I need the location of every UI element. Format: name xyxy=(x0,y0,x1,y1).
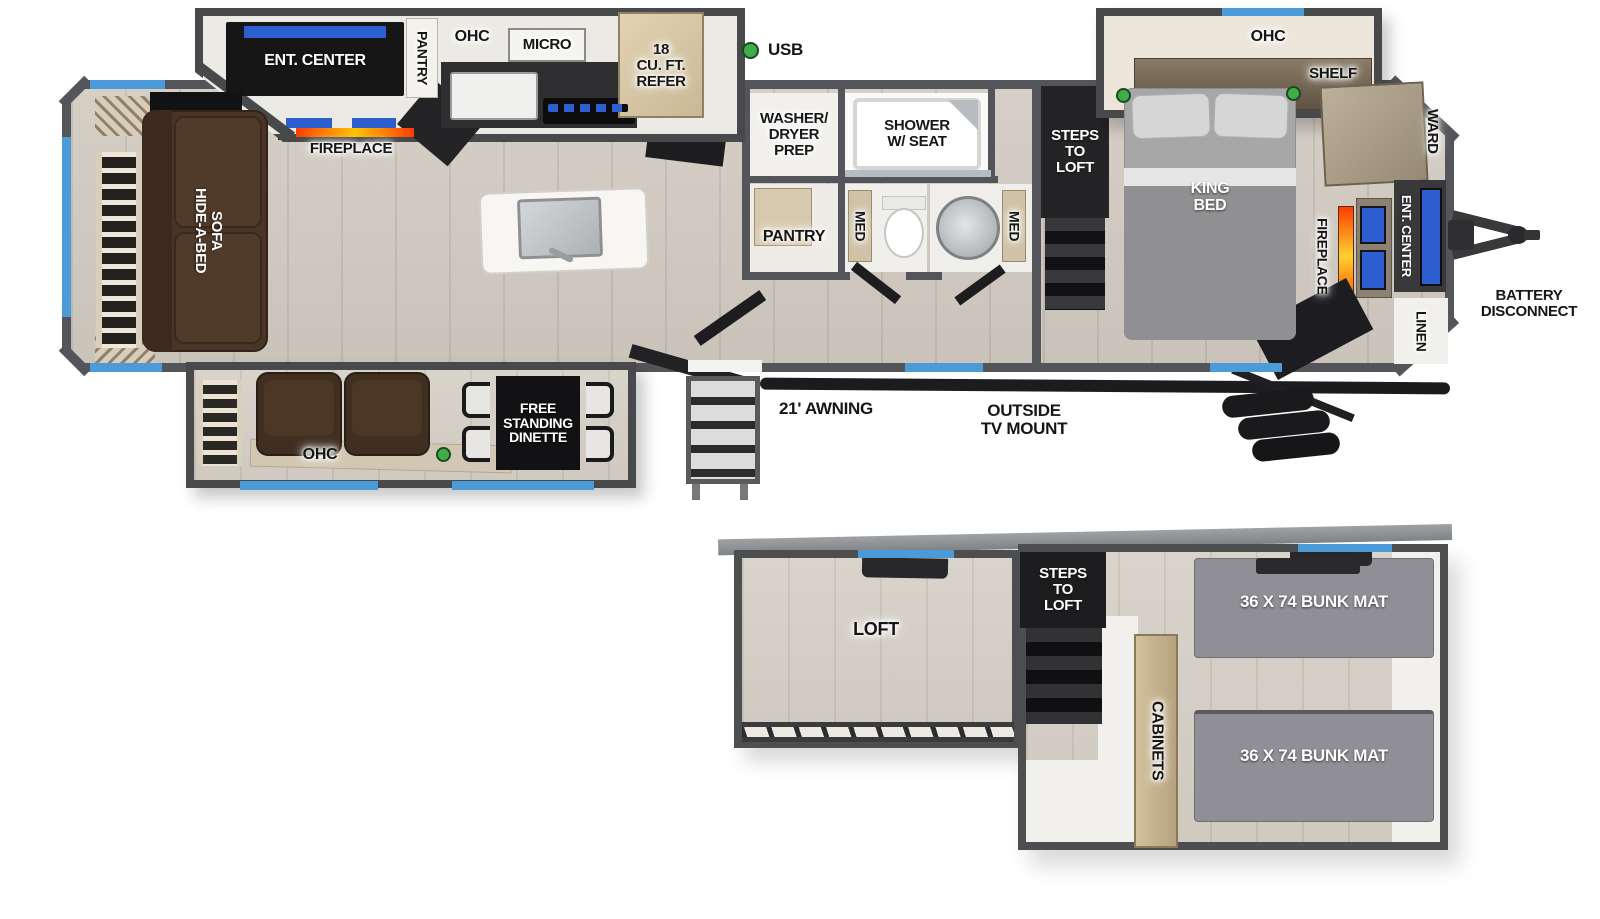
label-steps-lower: STEPS TO LOFT xyxy=(1016,556,1110,624)
entry-door-gap xyxy=(688,360,762,372)
window-loft xyxy=(858,550,954,558)
hide-a-bed-mechanism xyxy=(96,152,142,348)
wardrobe-cabinet xyxy=(1319,81,1428,186)
label-cabinets: CABINETS xyxy=(1132,640,1180,842)
kitchen-sink xyxy=(450,72,538,120)
label-kitchen-ohc: OHC xyxy=(443,26,501,48)
label-micro: MICRO xyxy=(508,28,586,62)
dinette-chair-top-left xyxy=(462,382,490,418)
bath-wall-bottom-b xyxy=(906,272,942,280)
window-rear-wall xyxy=(62,137,71,317)
label-slide-ohc: OHC xyxy=(288,444,352,466)
usb-legend-label: USB xyxy=(768,39,820,61)
tv-screen xyxy=(244,26,386,38)
label-shelf: SHELF xyxy=(1294,64,1372,84)
sofa-back xyxy=(142,110,172,352)
steps-to-loft-lower-treads xyxy=(1026,628,1102,724)
fireplace-tv-right xyxy=(352,118,396,128)
steps-to-loft-main-treads xyxy=(1045,218,1105,310)
dresser-door-bottom xyxy=(1360,250,1386,290)
window-bottom-bath xyxy=(905,363,983,372)
bath-wall-bottom-a xyxy=(742,272,850,280)
label-steps-main: STEPS TO LOFT xyxy=(1037,120,1113,184)
dinette-chair-bottom-left xyxy=(462,426,490,462)
cooktop-burners xyxy=(548,104,628,112)
bedroom-tv xyxy=(1420,188,1442,286)
label-awning: 21' AWNING xyxy=(764,398,888,420)
floorplan-canvas: ENT. CENTER PANTRY OHC MICRO 18 CU. FT. … xyxy=(0,0,1600,919)
label-dinette: FREE STANDING DINETTE xyxy=(490,380,586,466)
bunk-room-corner-floor xyxy=(1026,760,1100,842)
label-bunk-top: 36 X 74 BUNK MAT xyxy=(1194,582,1434,622)
label-washer-dryer: WASHER/ DRYER PREP xyxy=(750,96,838,174)
label-bedroom-fireplace: FIREPLACE xyxy=(1310,206,1334,306)
label-med-right: MED xyxy=(1000,190,1028,262)
dresser-door-top xyxy=(1360,206,1386,244)
label-shower: SHOWER W/ SEAT xyxy=(853,108,981,160)
label-bunk-bottom: 36 X 74 BUNK MAT xyxy=(1194,736,1434,776)
label-bedroom-ohc: OHC xyxy=(1238,26,1298,48)
usb-dot-theater xyxy=(436,447,451,462)
toilet-bowl xyxy=(884,208,924,258)
entry-steps-leg-right xyxy=(740,484,748,500)
label-king-bed: KING BED xyxy=(1124,168,1296,228)
window-bedroom-slide xyxy=(1222,8,1304,16)
label-battery-disconnect: BATTERY DISCONNECT xyxy=(1458,284,1600,324)
theater-seat-left-cushion xyxy=(264,380,334,436)
window-slide-bottom-left xyxy=(240,481,378,490)
hitch-jack xyxy=(1448,220,1474,250)
label-med-left: MED xyxy=(846,190,874,262)
island-sink xyxy=(517,197,603,260)
label-fireplace-living: FIREPLACE xyxy=(292,140,410,158)
pillow-right xyxy=(1213,93,1288,140)
usb-dot-bed-right xyxy=(1286,86,1301,101)
label-kitchen-pantry: PANTRY xyxy=(406,18,438,98)
label-tv-mount: OUTSIDE TV MOUNT xyxy=(958,400,1090,440)
dinette-chair-top-right xyxy=(586,382,614,418)
entry-steps xyxy=(686,376,760,484)
usb-dot-bed-left xyxy=(1116,88,1131,103)
shower-glass-door xyxy=(845,170,991,177)
window-slide-bottom-right xyxy=(452,481,594,490)
label-ward: WARD xyxy=(1418,96,1446,166)
loft-railing xyxy=(742,722,1014,742)
label-sofa: HIDE-A-BED SOFA xyxy=(176,146,240,316)
fireplace-tv-left xyxy=(286,118,332,128)
window-bottom-left xyxy=(90,363,162,372)
loft-room xyxy=(734,550,1020,748)
window-bunk xyxy=(1298,544,1392,552)
hitch-tip xyxy=(1524,230,1540,240)
awning-roller xyxy=(760,378,1450,395)
bunk-mat-top-headrest xyxy=(1256,558,1360,574)
bath-wall-mid-horiz xyxy=(742,176,998,183)
label-ent-center: ENT. CENTER xyxy=(231,48,399,74)
dinette-chair-bottom-right xyxy=(586,426,614,462)
pillow-left xyxy=(1131,93,1210,140)
label-bath-pantry: PANTRY xyxy=(748,226,840,248)
label-bedroom-ent-center: ENT. CENTER xyxy=(1392,184,1420,288)
theater-seat-right-cushion xyxy=(352,380,422,436)
fireplace-flame xyxy=(296,128,414,137)
label-refer: 18 CU. FT. REFER xyxy=(618,18,704,114)
window-bottom-bedroom xyxy=(1210,363,1282,372)
label-loft: LOFT xyxy=(834,616,918,642)
label-linen: LINEN xyxy=(1394,298,1448,364)
loft-curtain xyxy=(862,557,948,578)
slide-hide-a-bed-slats xyxy=(198,380,242,466)
usb-legend-dot xyxy=(742,42,759,59)
window-top-left xyxy=(90,80,165,89)
entry-steps-leg-left xyxy=(692,484,700,500)
vanity-sink xyxy=(936,196,1000,260)
bath-wall-shower-right xyxy=(988,86,995,183)
